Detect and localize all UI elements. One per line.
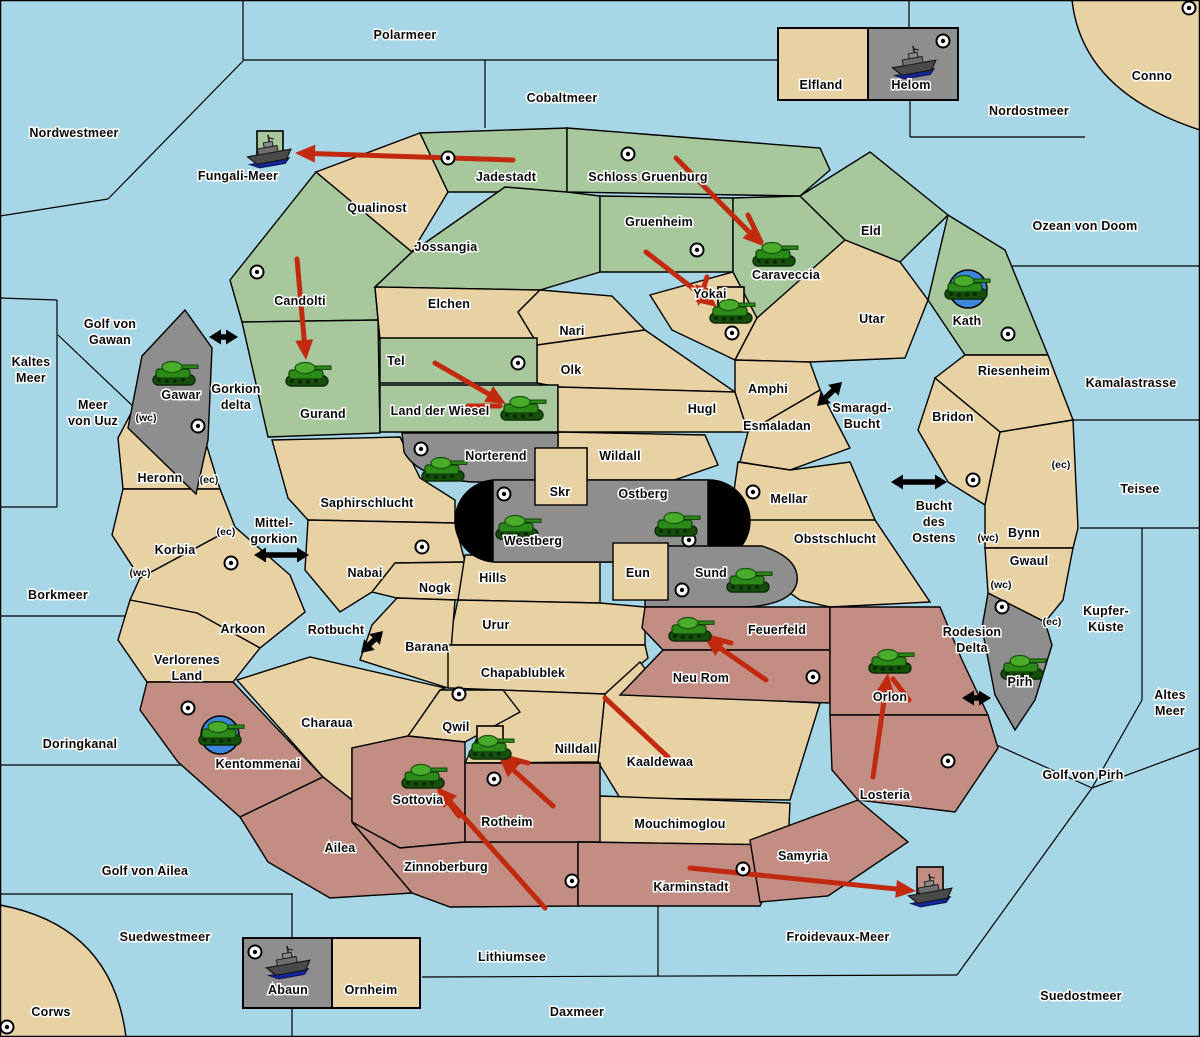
label--ec-: (ec) (1052, 459, 1071, 471)
label-jossangia: Jossangia (415, 240, 479, 254)
label-gwaul: Gwaul (1010, 554, 1049, 568)
label-losteria: Losteria (860, 788, 911, 802)
city-marker[interactable] (488, 773, 501, 786)
label-abaun: Abaun (268, 983, 308, 997)
city-marker[interactable] (726, 327, 739, 340)
label-kentommenai: Kentommenai (216, 757, 301, 771)
label-bridon: Bridon (932, 410, 973, 424)
label-mouchimoglou: Mouchimoglou (634, 817, 725, 831)
label--wc-: (wc) (136, 412, 157, 424)
label--ec-: (ec) (1043, 616, 1062, 628)
label-polarmeer: Polarmeer (374, 28, 437, 42)
label-candolti: Candolti (274, 294, 326, 308)
label-rotbucht: Rotbucht (308, 623, 365, 637)
label-schloss-gruenburg: Schloss Gruenburg (588, 170, 707, 184)
label-orlon: Orlon (873, 690, 907, 704)
city-marker[interactable] (192, 420, 205, 433)
label-mellar: Mellar (770, 492, 807, 506)
label-tel: Tel (387, 354, 405, 368)
label-nogk: Nogk (419, 581, 451, 595)
label-samyria: Samyria (778, 849, 829, 863)
city-marker[interactable] (415, 443, 428, 456)
label-nordostmeer: Nordostmeer (989, 104, 1069, 118)
city-marker[interactable] (1, 1021, 14, 1034)
game-map: PolarmeerNordwestmeerCobaltmeerFungali-M… (0, 0, 1200, 1037)
label-ostberg: Ostberg (618, 487, 667, 501)
label-heronn: Heronn (138, 471, 183, 485)
label-rotheim: Rotheim (481, 815, 532, 829)
label-bynn: Bynn (1008, 526, 1040, 540)
label-pirh: Pirh (1007, 675, 1032, 689)
label-caraveccia: Caraveccia (752, 268, 821, 282)
label-gurand: Gurand (300, 407, 346, 421)
label-qualinost: Qualinost (347, 201, 407, 215)
label-elfland: Elfland (799, 78, 842, 92)
city-marker[interactable] (182, 702, 195, 715)
city-marker[interactable] (676, 584, 689, 597)
label-eld: Eld (861, 224, 881, 238)
label-gruenheim: Gruenheim (625, 215, 693, 229)
label-conno: Conno (1132, 69, 1173, 83)
city-marker[interactable] (937, 35, 950, 48)
city-marker[interactable] (1183, 2, 1196, 15)
label-nordwestmeer: Nordwestmeer (29, 126, 118, 140)
label--wc-: (wc) (991, 579, 1012, 591)
label-ornheim: Ornheim (345, 983, 398, 997)
label-golf-von-pirh: Golf von Pirh (1042, 768, 1123, 782)
city-marker[interactable] (251, 266, 264, 279)
label-arkoon: Arkoon (221, 622, 266, 636)
label-daxmeer: Daxmeer (550, 1005, 604, 1019)
label-utar: Utar (859, 312, 885, 326)
label-hugl: Hugl (688, 402, 717, 416)
label-suedwestmeer: Suedwestmeer (120, 930, 211, 944)
label-sund: Sund (695, 566, 727, 580)
label--wc-: (wc) (978, 532, 999, 544)
label-charaua: Charaua (301, 716, 353, 730)
label--ec-: (ec) (217, 526, 236, 538)
city-marker[interactable] (453, 688, 466, 701)
label-borkmeer: Borkmeer (28, 588, 88, 602)
label-kamalastrasse: Kamalastrasse (1086, 376, 1177, 390)
city-marker[interactable] (622, 148, 635, 161)
city-marker[interactable] (942, 755, 955, 768)
territory-urur[interactable] (448, 600, 645, 645)
city-marker[interactable] (512, 357, 525, 370)
label-lithiumsee: Lithiumsee (478, 950, 546, 964)
city-marker[interactable] (442, 152, 455, 165)
label-land-der-wiesel: Land der Wiesel (391, 404, 490, 418)
label--ec-: (ec) (200, 474, 219, 486)
label-kaaldewaa: Kaaldewaa (627, 755, 694, 769)
label-sottovia: Sottovia (393, 793, 445, 807)
label-urur: Urur (482, 618, 509, 632)
label-kath: Kath (953, 314, 982, 328)
label-doringkanal: Doringkanal (43, 737, 117, 751)
label-teisee: Teisee (1120, 482, 1159, 496)
label-yokai: Yokai (693, 287, 726, 301)
label-neu-rom: Neu Rom (673, 671, 729, 685)
label-ozean-von-doom: Ozean von Doom (1033, 219, 1138, 233)
label-riesenheim: Riesenheim (978, 364, 1050, 378)
label-esmaladan: Esmaladan (743, 419, 811, 433)
label-barana: Barana (405, 640, 449, 654)
label-obstschlucht: Obstschlucht (794, 532, 877, 546)
label-suedostmeer: Suedostmeer (1040, 989, 1121, 1003)
label-wildall: Wildall (599, 449, 641, 463)
label-jadestadt: Jadestadt (476, 170, 537, 184)
label-chapablublek: Chapablublek (481, 666, 565, 680)
label-froidevaux-meer: Froidevaux-Meer (786, 930, 889, 944)
label-zinnoberburg: Zinnoberburg (404, 860, 488, 874)
label-cobaltmeer: Cobaltmeer (527, 91, 598, 105)
label-elchen: Elchen (428, 297, 470, 311)
city-marker[interactable] (566, 875, 579, 888)
city-marker[interactable] (737, 863, 750, 876)
territory-gruenheim[interactable] (600, 196, 733, 272)
label-golf-von-ailea: Golf von Ailea (102, 864, 189, 878)
label-westberg: Westberg (504, 534, 562, 548)
label-amphi: Amphi (748, 382, 788, 396)
label-saphirschlucht: Saphirschlucht (320, 496, 414, 510)
city-marker[interactable] (996, 601, 1009, 614)
label-feuerfeld: Feuerfeld (748, 623, 806, 637)
city-marker[interactable] (747, 486, 760, 499)
label-hills: Hills (479, 571, 506, 585)
label-fungali-meer: Fungali-Meer (198, 169, 278, 183)
label-qwil: Qwil (442, 720, 469, 734)
label-corws: Corws (31, 1005, 70, 1019)
territory-rotheim[interactable] (465, 763, 600, 842)
label-nari: Nari (559, 324, 584, 338)
label-eun: Eun (626, 566, 650, 580)
city-marker[interactable] (967, 474, 980, 487)
territory-ornheim[interactable] (332, 938, 420, 1008)
label-gawar: Gawar (161, 388, 200, 402)
label-skr: Skr (550, 485, 571, 499)
label-nabai: Nabai (347, 566, 382, 580)
label-ailea: Ailea (325, 841, 357, 855)
label-korbia: Korbia (155, 543, 197, 557)
city-marker[interactable] (498, 488, 511, 501)
territory-hugl[interactable] (558, 387, 748, 432)
label-nilldall: Nilldall (555, 742, 598, 756)
label--wc-: (wc) (130, 567, 151, 579)
city-marker[interactable] (691, 244, 704, 257)
city-marker[interactable] (416, 541, 429, 554)
territory-elchen[interactable] (375, 287, 540, 345)
city-marker[interactable] (1002, 328, 1015, 341)
city-marker[interactable] (225, 557, 238, 570)
city-marker[interactable] (807, 671, 820, 684)
city-marker[interactable] (249, 946, 262, 959)
label-olk: Olk (561, 363, 582, 377)
label-karminstadt: Karminstadt (653, 880, 729, 894)
label-helom: Helom (891, 78, 930, 92)
label-norterend: Norterend (465, 449, 527, 463)
map-canvas: PolarmeerNordwestmeerCobaltmeerFungali-M… (0, 0, 1200, 1037)
